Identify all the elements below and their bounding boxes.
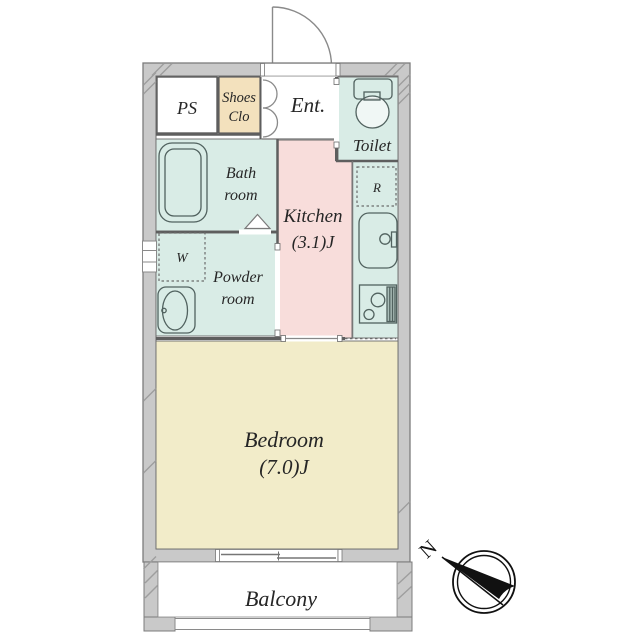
toilet-label: Toilet [353, 136, 392, 155]
refrigerator-space-label: R [372, 180, 381, 195]
washer-space-label: W [176, 250, 189, 265]
bathroom-label-line2: room [224, 187, 257, 204]
bathroom-door [239, 230, 271, 235]
balcony-rail-left-block [144, 617, 175, 631]
powder-room-label-line1: Powder [212, 269, 264, 286]
powder-room-door [275, 250, 280, 330]
shoes-closet-label-line2: Clo [229, 109, 250, 125]
kitchen-label-line2: (3.1)J [292, 232, 335, 253]
floor-plan-canvas: PS Shoes Clo Ent. Toilet Bath room Kitch… [0, 0, 640, 640]
bedroom-label-line2: (7.0)J [259, 455, 310, 479]
balcony-left-wall [144, 562, 158, 617]
kitchen-label-line1: Kitchen [282, 206, 342, 227]
bathroom-label-line1: Bath [226, 165, 256, 182]
powder-room-window [143, 241, 157, 272]
balcony-rail-right-block [370, 617, 412, 631]
balcony-right-wall [397, 562, 412, 617]
shoes-closet-label-line1: Shoes [222, 90, 256, 106]
floor-plan-drawing: PS Shoes Clo Ent. Toilet Bath room Kitch… [0, 0, 640, 640]
entrance-threshold [264, 64, 336, 77]
toilet-door [334, 84, 339, 142]
ps-label: PS [176, 98, 197, 118]
powder-room-label-line2: room [221, 291, 254, 308]
bedroom-label-line1: Bedroom [244, 427, 324, 452]
balcony-label: Balcony [245, 586, 317, 611]
entrance-label: Ent. [290, 93, 325, 117]
balcony-railing [175, 619, 370, 630]
bedroom-balcony-window [216, 550, 343, 562]
